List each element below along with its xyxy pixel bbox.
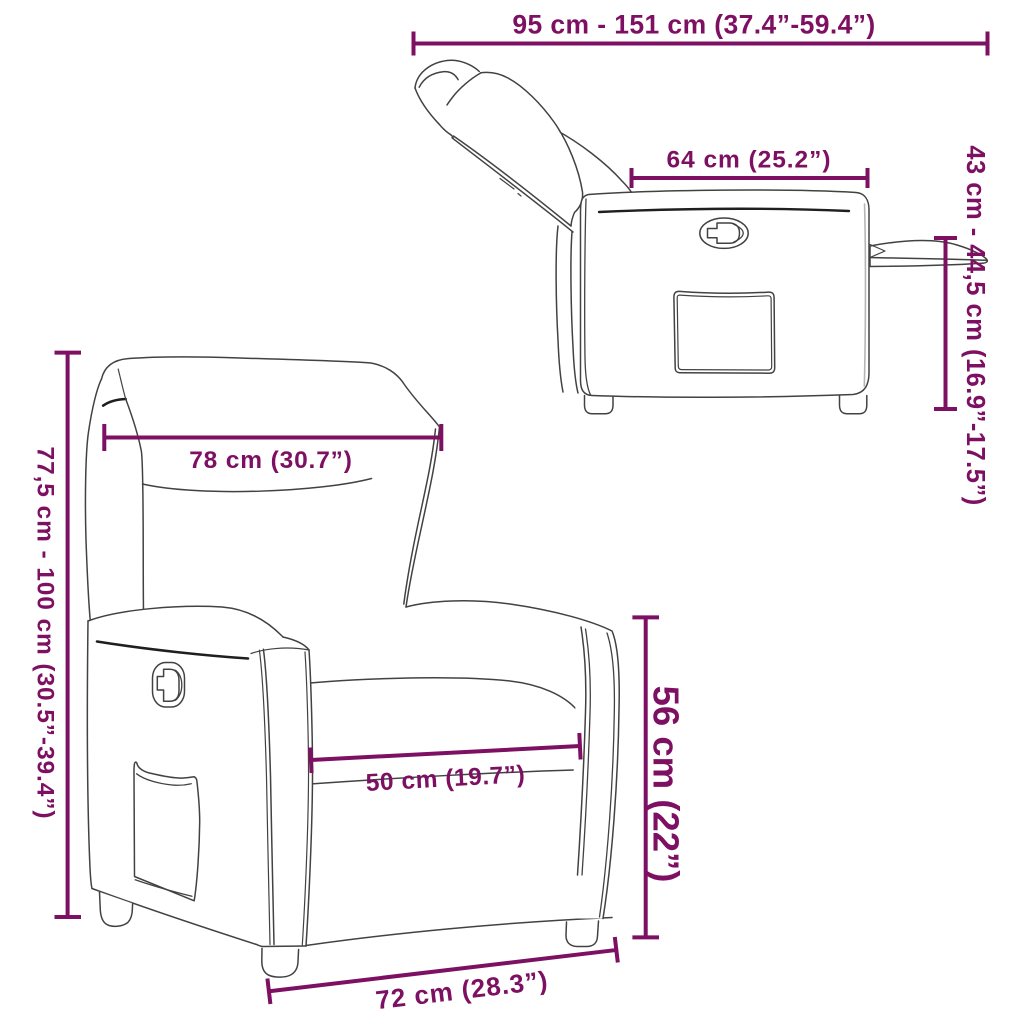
svg-text:56 cm (22”): 56 cm (22”) [646, 686, 687, 883]
svg-text:72 cm (28.3”): 72 cm (28.3”) [374, 965, 550, 1015]
svg-text:64 cm (25.2”): 64 cm (25.2”) [667, 146, 832, 173]
svg-text:77,5 cm - 100 cm (30.5”-39.4”): 77,5 cm - 100 cm (30.5”-39.4”) [32, 447, 59, 820]
svg-text:50 cm (19.7”): 50 cm (19.7”) [365, 761, 526, 797]
svg-text:95 cm - 151 cm (37.4”-59.4”): 95 cm - 151 cm (37.4”-59.4”) [512, 10, 875, 40]
svg-text:78 cm (30.7”): 78 cm (30.7”) [189, 447, 353, 474]
svg-text:43 cm - 44,5 cm (16.9”-17.5”): 43 cm - 44,5 cm (16.9”-17.5”) [961, 145, 989, 505]
